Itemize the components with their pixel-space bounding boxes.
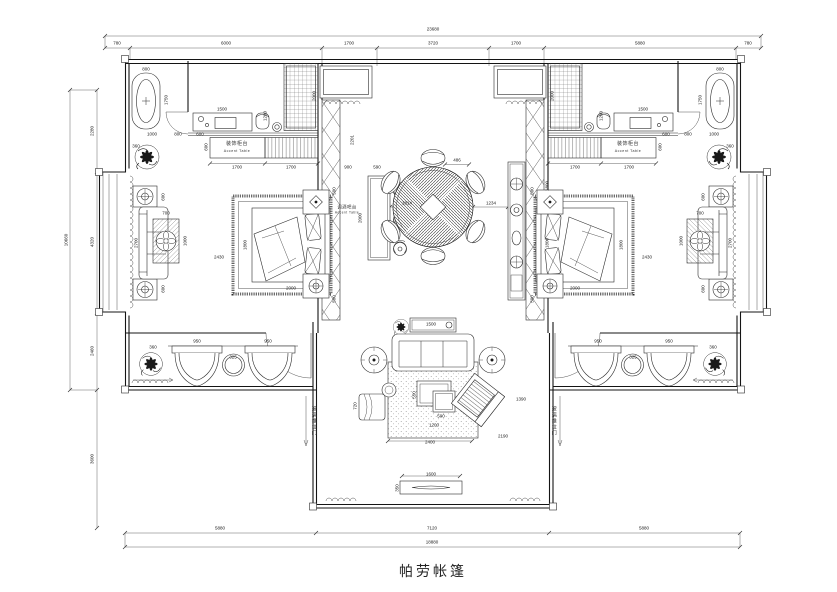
text-label: Accent Table — [615, 149, 642, 153]
floor-plan-page: 2368078060001700372017005880780106602280… — [0, 0, 837, 592]
text-label: Accent Table — [335, 211, 359, 214]
text-label: 装饰柜台 — [226, 142, 248, 147]
text-label: 玻璃推拉门 — [551, 406, 556, 436]
text-label: 调酒吧台 — [337, 205, 357, 209]
drawing-title: 帕劳帐篷 — [399, 561, 467, 581]
text-label-layer: 装饰柜台Accent Table装饰柜台Accent Table调酒吧台Acce… — [0, 0, 837, 592]
text-label: Accent Table — [224, 149, 251, 153]
text-label: 装饰柜台 — [617, 142, 639, 147]
text-label: 玻璃推拉门 — [311, 406, 316, 436]
